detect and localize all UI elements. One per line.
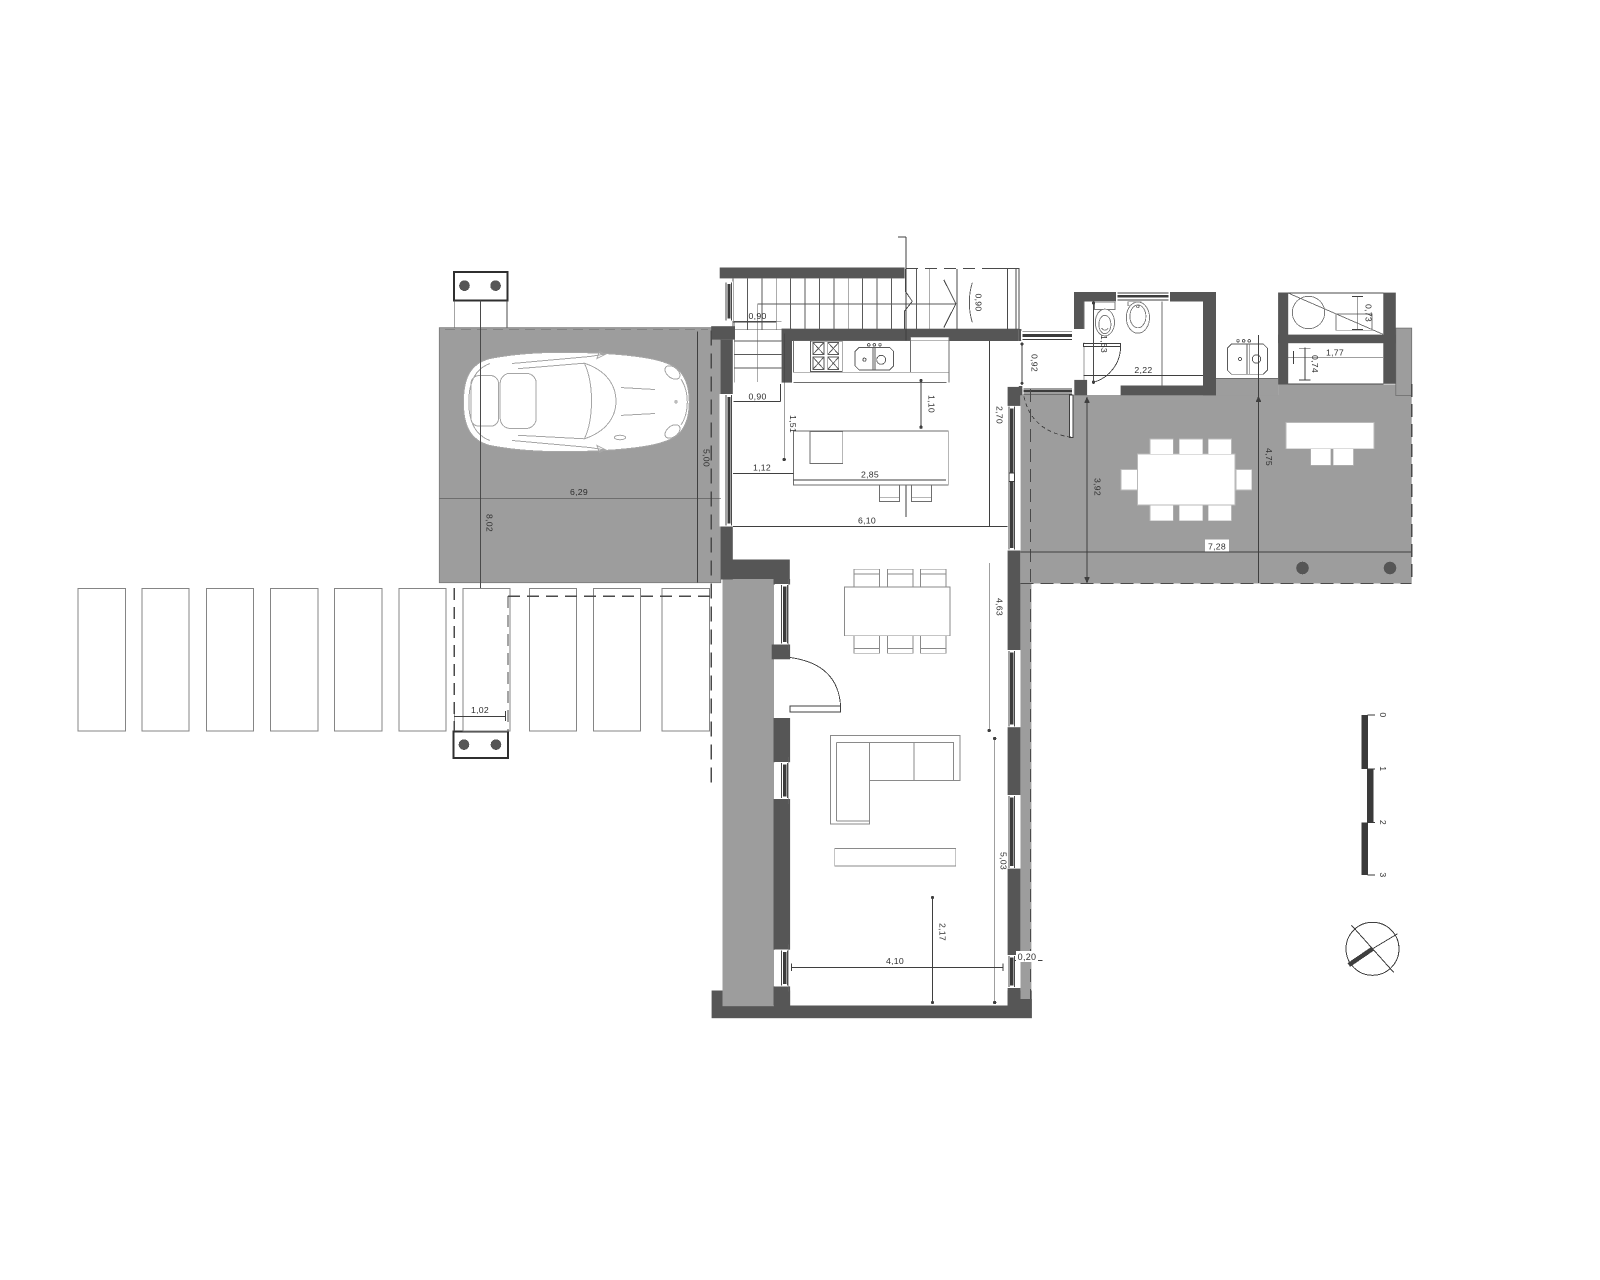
svg-text:0,20: 0,20 — [1018, 952, 1037, 962]
svg-text:4,75: 4,75 — [1264, 448, 1274, 466]
svg-text:2: 2 — [1378, 820, 1388, 825]
svg-text:0,90: 0,90 — [749, 392, 767, 402]
svg-text:1: 1 — [1378, 766, 1388, 771]
svg-text:1,77: 1,77 — [1326, 348, 1344, 358]
svg-text:7,28: 7,28 — [1208, 542, 1226, 552]
svg-text:2,22: 2,22 — [1134, 365, 1152, 375]
svg-text:0: 0 — [1378, 712, 1388, 717]
svg-text:3: 3 — [1378, 872, 1388, 877]
svg-text:1,02: 1,02 — [471, 705, 489, 715]
svg-text:1,12: 1,12 — [753, 463, 771, 473]
svg-text:2,70: 2,70 — [995, 406, 1005, 424]
svg-text:6,29: 6,29 — [570, 487, 588, 497]
svg-text:0,73: 0,73 — [1364, 304, 1374, 322]
svg-text:2,85: 2,85 — [861, 470, 879, 480]
svg-text:0,90: 0,90 — [974, 293, 984, 311]
svg-text:5,03: 5,03 — [999, 852, 1009, 870]
svg-text:1,51: 1,51 — [788, 415, 798, 433]
svg-text:5,00: 5,00 — [702, 449, 712, 467]
svg-text:8,02: 8,02 — [485, 514, 495, 532]
svg-text:0,74: 0,74 — [1310, 355, 1320, 373]
svg-text:0,92: 0,92 — [1030, 354, 1040, 372]
svg-text:4,63: 4,63 — [995, 598, 1005, 616]
svg-text:1,10: 1,10 — [927, 395, 937, 413]
svg-text:0,90: 0,90 — [749, 311, 767, 321]
svg-text:2,17: 2,17 — [938, 923, 948, 941]
svg-text:1,63: 1,63 — [1099, 335, 1109, 353]
svg-text:3,92: 3,92 — [1093, 478, 1103, 496]
svg-text:6,10: 6,10 — [858, 516, 876, 526]
svg-text:4,10: 4,10 — [886, 956, 904, 966]
